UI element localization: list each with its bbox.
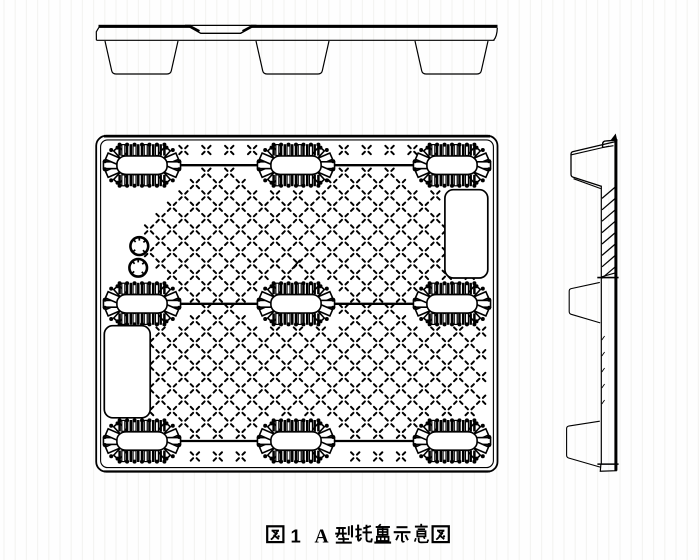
svg-text:A: A: [315, 527, 329, 548]
svg-text:1: 1: [291, 526, 301, 547]
